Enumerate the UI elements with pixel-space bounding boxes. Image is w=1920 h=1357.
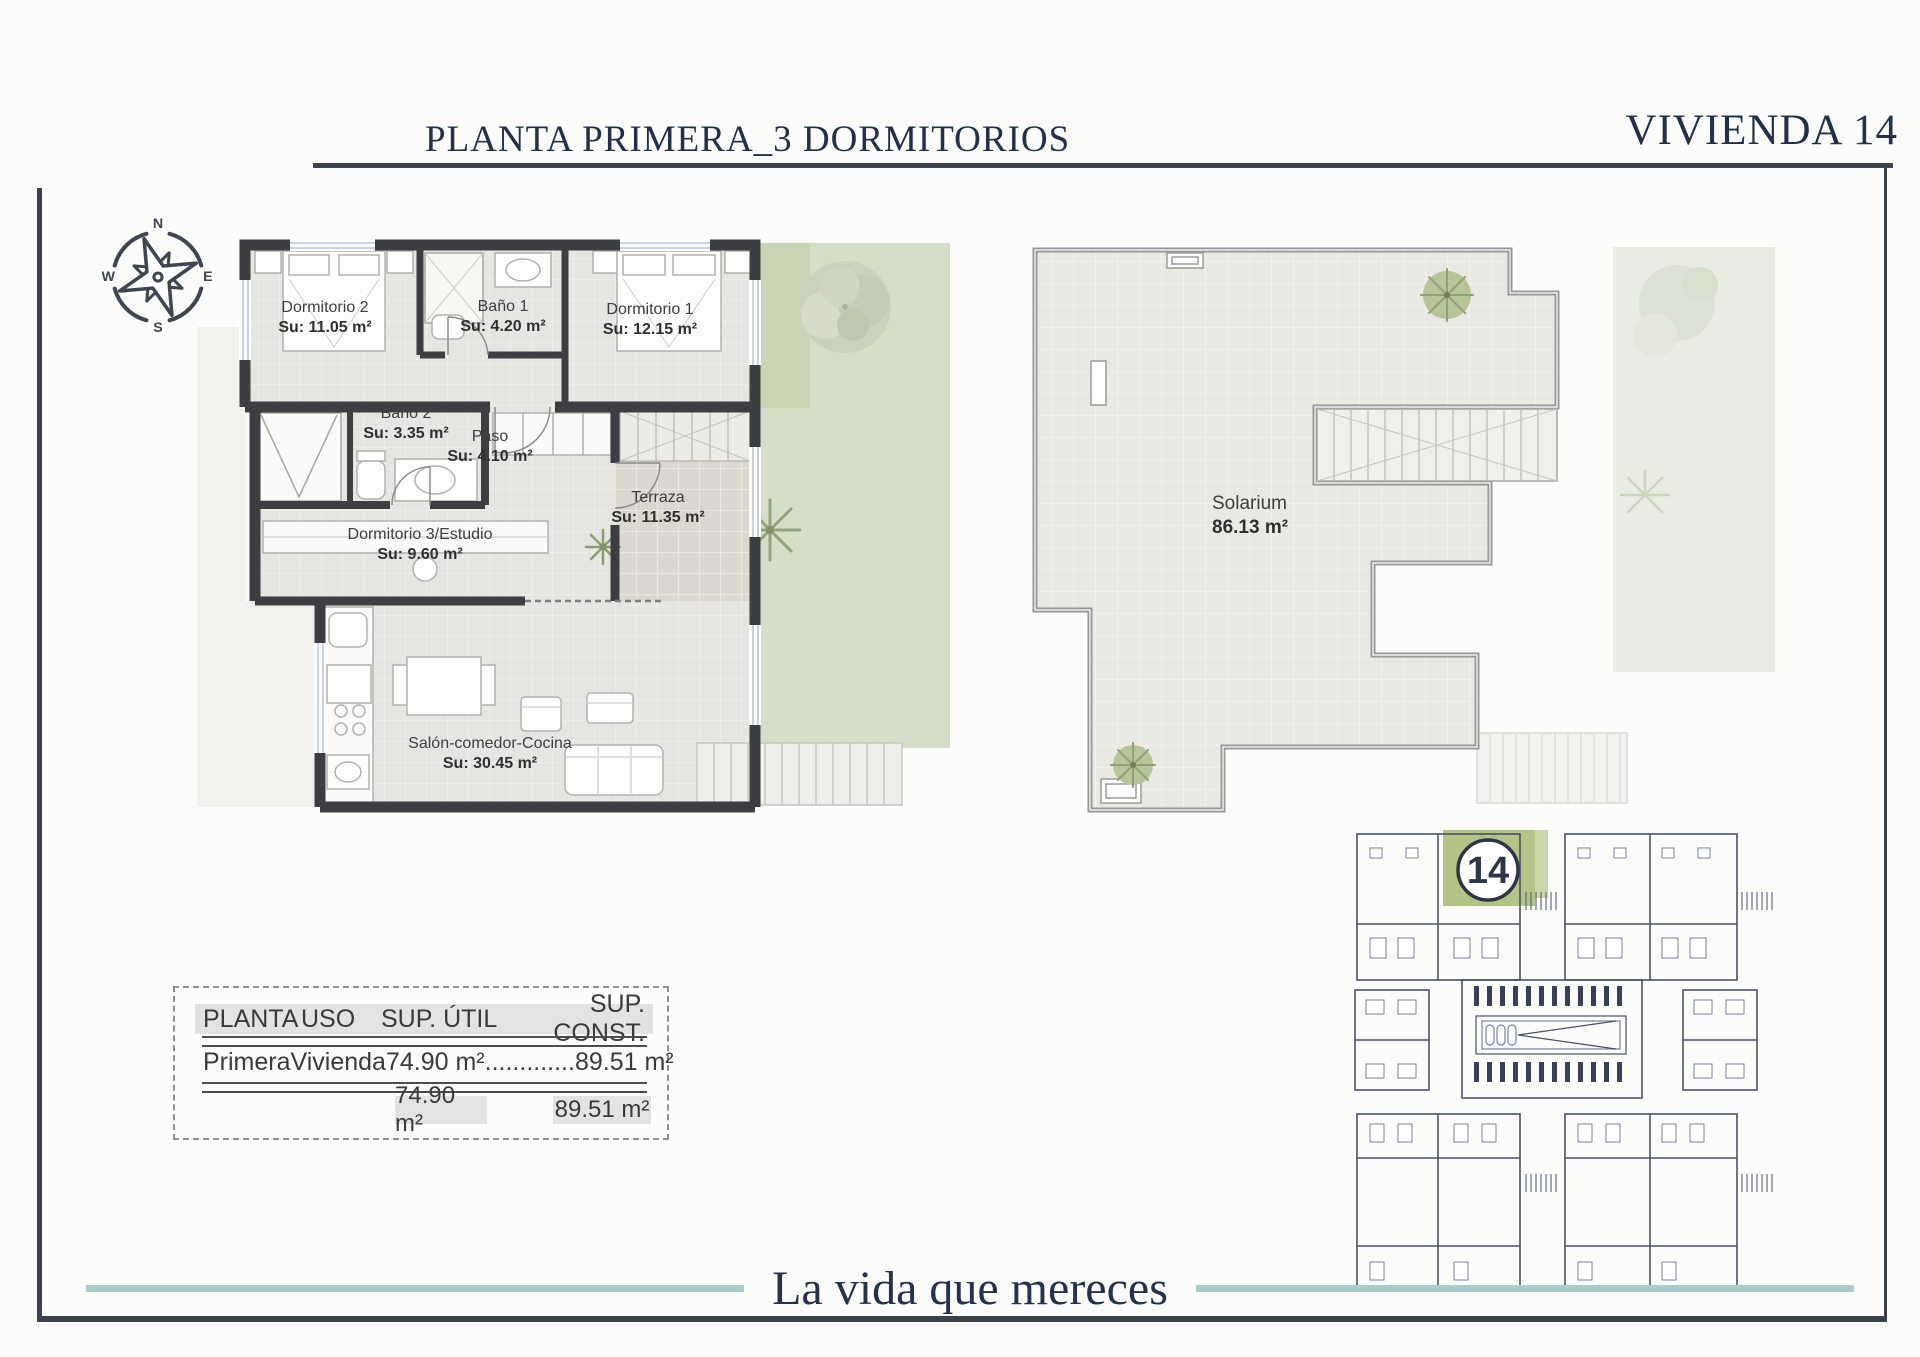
- room-label-paso: PasoSu: 4.10 m²: [447, 427, 532, 467]
- left-frame-rule: [37, 188, 42, 1321]
- room-label-salon: Salón-comedor-CocinaSu: 30.45 m²: [408, 734, 572, 774]
- total-sup-const: 89.51 m²: [553, 1096, 651, 1124]
- garden-area: [735, 243, 950, 748]
- compass-s: S: [153, 320, 163, 333]
- room-label-bano1: Baño 1Su: 4.20 m²: [460, 297, 545, 337]
- faded-garden: [1613, 247, 1775, 672]
- footer: La vida que mereces: [86, 1252, 1854, 1324]
- col-sup-util: SUP. ÚTIL: [381, 1005, 529, 1034]
- right-frame-rule: [1884, 163, 1887, 1321]
- unit-14-number: 14: [1467, 850, 1509, 892]
- site-plan: 14: [1350, 828, 1805, 1310]
- col-uso: USO: [301, 1005, 381, 1034]
- parking-stripes: [1474, 986, 1622, 1082]
- total-sup-util: 74.90 m²: [395, 1096, 487, 1124]
- tagline-rule-left: [86, 1285, 744, 1292]
- room-label-solarium: Solarium86.13 m²: [1212, 492, 1288, 540]
- unit-title: VIVIENDA 14: [1625, 106, 1898, 155]
- table-row: Primera Vivienda 74.90 m²............. 8…: [203, 1048, 649, 1077]
- page-title: PLANTA PRIMERA_3 DORMITORIOS: [425, 118, 1070, 161]
- header-rule: [313, 163, 1893, 168]
- solarium-plan: [985, 195, 1795, 855]
- tree-icon: [799, 261, 891, 353]
- deck-tree-icon: [1421, 269, 1473, 321]
- areas-table-header: PLANTA USO SUP. ÚTIL SUP. CONST.: [195, 1004, 653, 1034]
- table-totals: 74.90 m² 89.51 m²: [175, 1096, 667, 1126]
- brochure-page: PLANTA PRIMERA_3 DORMITORIOS VIVIENDA 14…: [0, 0, 1920, 1357]
- solarium-stairs: [1317, 409, 1557, 481]
- tagline: La vida que mereces: [772, 1261, 1168, 1316]
- tagline-rule-right: [1196, 1285, 1854, 1292]
- pool: [1476, 1016, 1626, 1054]
- garden-stairs: [697, 743, 902, 805]
- room-label-terraza: TerrazaSu: 11.35 m²: [611, 488, 704, 528]
- room-label-bano2: Baño 2Su: 3.35 m²: [363, 404, 448, 444]
- room-label-dormitorio1: Dormitorio 1Su: 12.15 m²: [603, 300, 697, 340]
- room-label-dormitorio2: Dormitorio 2Su: 11.05 m²: [278, 298, 371, 338]
- room-label-dormitorio3: Dormitorio 3/EstudioSu: 9.60 m²: [348, 525, 493, 565]
- stairs: [620, 411, 750, 461]
- compass-w: W: [102, 269, 115, 285]
- col-planta: PLANTA: [203, 1005, 301, 1034]
- faded-stairs: [1477, 733, 1627, 803]
- table-divider: [202, 1036, 647, 1047]
- deck-tree-icon: [1111, 743, 1155, 787]
- areas-table: PLANTA USO SUP. ÚTIL SUP. CONST. Primera…: [173, 986, 669, 1140]
- compass-n: N: [153, 216, 163, 232]
- first-floor-plan: [195, 195, 995, 850]
